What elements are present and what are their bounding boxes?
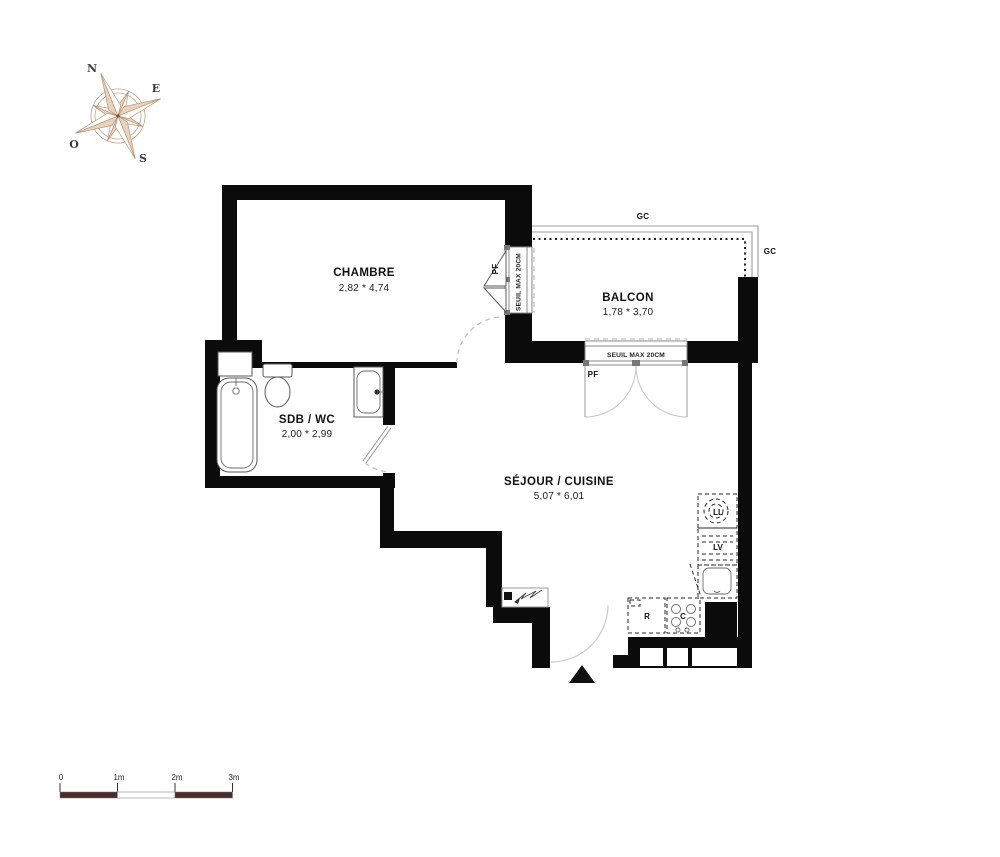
washing-machine: LL [698,494,737,528]
compass-label-south: S [139,152,147,165]
entrance-door-swing [551,605,608,662]
railing-dotted-line [533,239,745,277]
pf-label-balcon: PF [588,370,599,379]
fridge-label: R [644,612,650,621]
scale-segment-dark-2 [175,792,233,798]
wall-sdb-right [383,362,395,425]
wall-vestibule-right [532,623,550,668]
cooktop-label: C [680,612,686,621]
scale-tick-0: 0 [59,773,64,782]
room-name-sejour: SÉJOUR / CUISINE [504,475,614,488]
room-name-chambre: CHAMBRE [333,267,395,279]
cooktop: C [667,598,700,633]
sdb-door-swing [365,463,390,472]
wall-step-horizontal [380,531,502,548]
room-labels: CHAMBRE 2,82 * 4,74 BALCON 1,78 * 3,70 S… [279,267,654,502]
railing-outer-line [532,226,758,277]
faucet-dot [374,389,379,394]
wall-balcon-right [738,277,758,363]
compass-label-east: E [152,82,160,95]
toilet [263,364,292,407]
counter-edge-dashed [690,564,701,597]
balcony-railing [532,226,758,277]
entrance-arrow [569,665,595,683]
wall-under-fixture [493,607,550,623]
window-pf-balcon: SEUIL MAX 20CM PF [583,339,688,417]
duct-shaft [218,352,252,376]
bathtub [217,378,257,472]
floor-plan-drawing: N E S O [0,0,1000,857]
scale-segment-dark-1 [60,792,118,798]
gc-label-top: GC [637,212,650,221]
room-name-balcon: BALCON [602,292,654,304]
wall-above-pf-window [505,200,532,247]
seuil-label-chambre: SEUIL MAX 20CM [516,253,523,311]
railing-inner-line [532,232,752,277]
chambre-door-swing [457,317,503,363]
wall-sdb-bottom [205,476,395,488]
room-dims-chambre: 2,82 * 4,74 [339,283,390,294]
scale-tick-3m: 3m [228,773,239,782]
room-dims-balcon: 1,78 * 3,70 [603,307,654,318]
compass-rose: N E S O [58,56,178,176]
compass-label-west: O [69,138,79,151]
pf-label-chambre: PF [491,264,500,275]
wall-sejour-right [738,363,752,668]
dishwasher: LV [698,528,737,565]
door-swing-right [636,366,687,417]
scale-tick-2m: 2m [171,773,182,782]
wall-bottom-step [613,655,628,668]
fridge: R [628,598,665,633]
bathroom-fixtures [217,352,384,472]
electrical-box [502,588,548,607]
sdb-door [363,426,391,472]
washing-machine-label: LL [713,508,723,517]
compass-star [58,56,178,176]
scale-tick-1m: 1m [113,773,124,782]
wall-west-below-sdb [380,476,394,531]
window-pf-chambre: SEUIL MAX 20CM PF [484,245,534,315]
gc-label-right: GC [764,247,777,256]
wall-chambre-top [222,185,532,200]
floor-plan-page: N E S O [0,0,1000,857]
room-name-sdb: SDB / WC [279,414,335,426]
bathroom-sink [354,367,384,417]
dishwasher-label: LV [713,543,723,552]
room-dims-sejour: 5,07 * 6,01 [534,491,585,502]
wall-chambre-left [222,185,237,362]
kitchen-sink [690,564,737,598]
wall-sdb-right-bottom [383,473,395,478]
scale-bar: 0 1m 2m 3m [59,773,240,798]
seuil-label-balcon: SEUIL MAX 20CM [607,352,665,359]
scale-segment-light [118,792,176,798]
walls [205,185,758,668]
wall-balcon-bottom-left [505,341,585,363]
room-dims-sdb: 2,00 * 2,99 [282,429,333,440]
casement-leaf-lower [484,288,506,312]
wall-kitchen-block [705,602,737,637]
compass-label-north: N [87,62,97,75]
